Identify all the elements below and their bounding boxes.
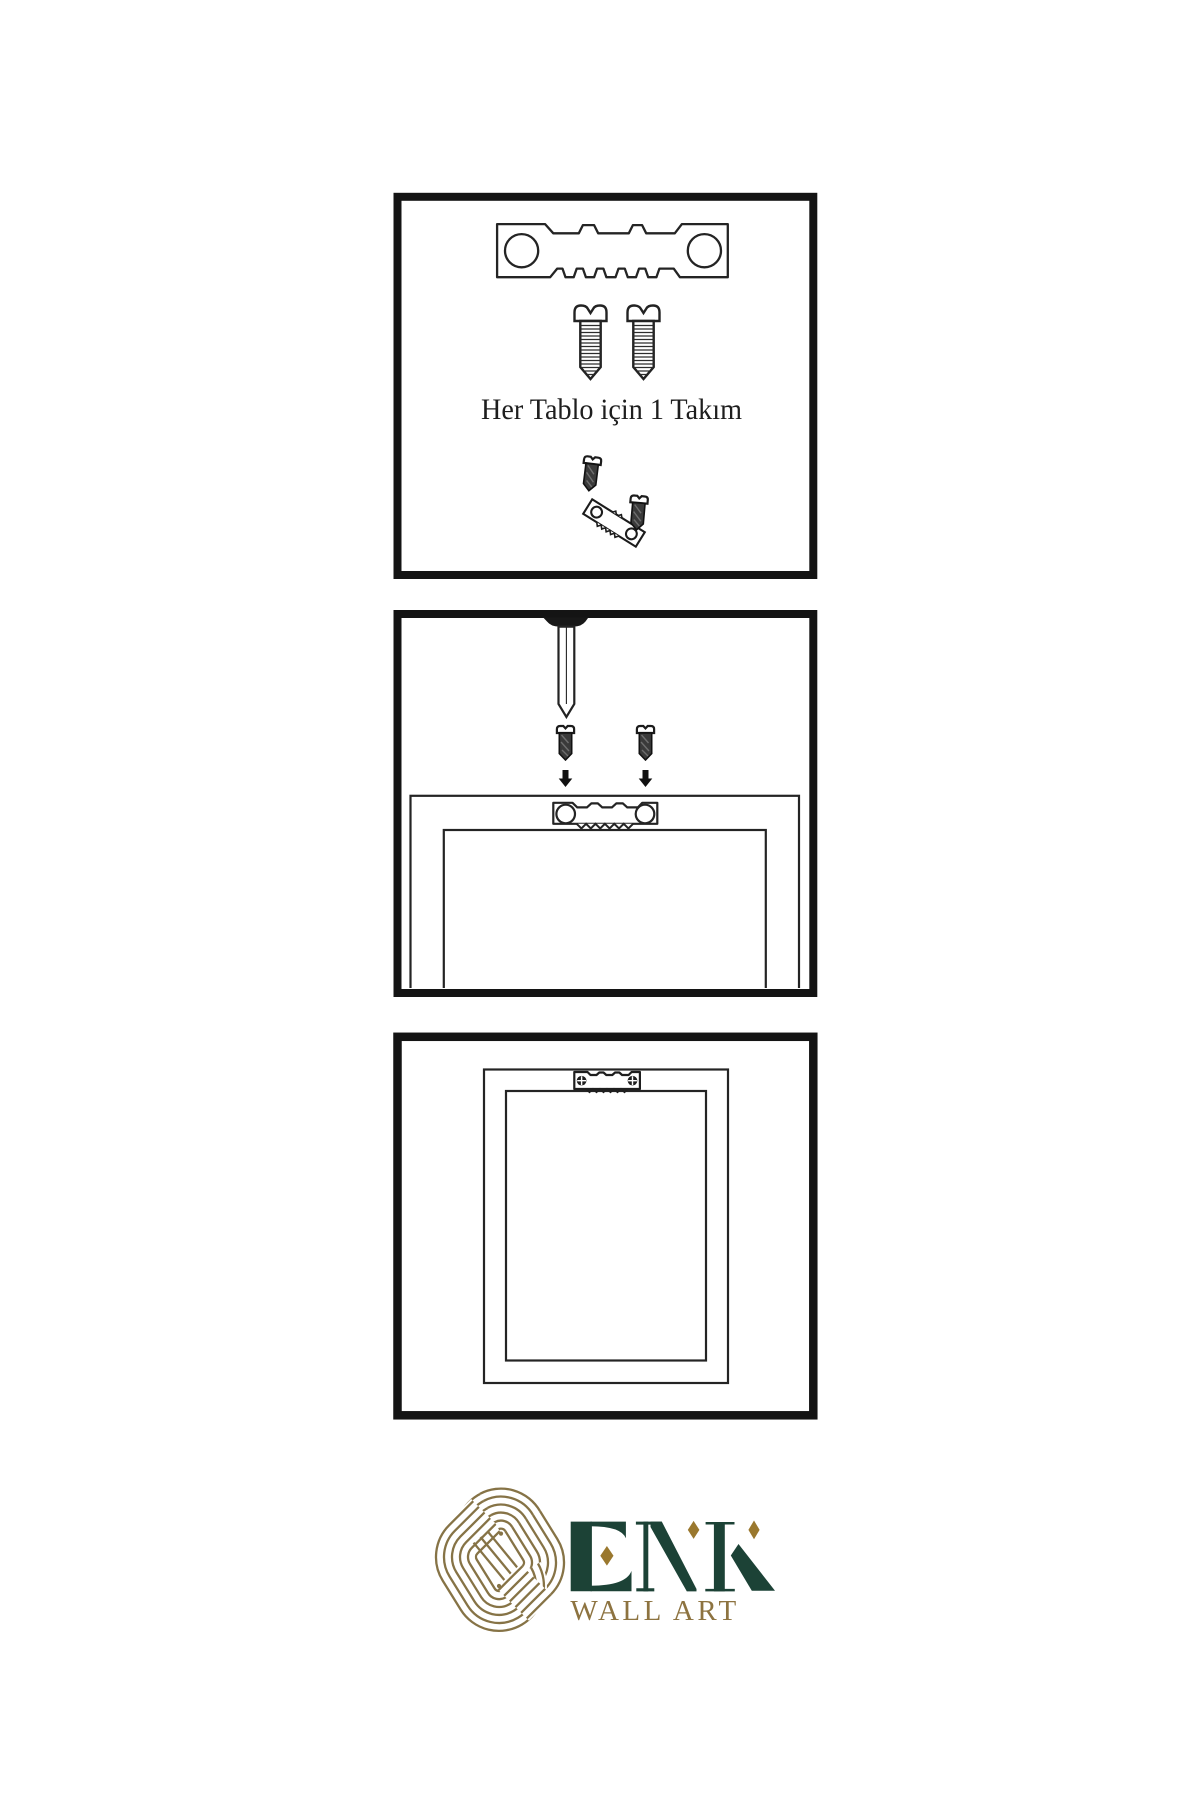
svg-text:WALL ART: WALL ART [570, 1595, 739, 1627]
svg-text:Her Tablo için 1 Takım: Her Tablo için 1 Takım [481, 393, 742, 426]
